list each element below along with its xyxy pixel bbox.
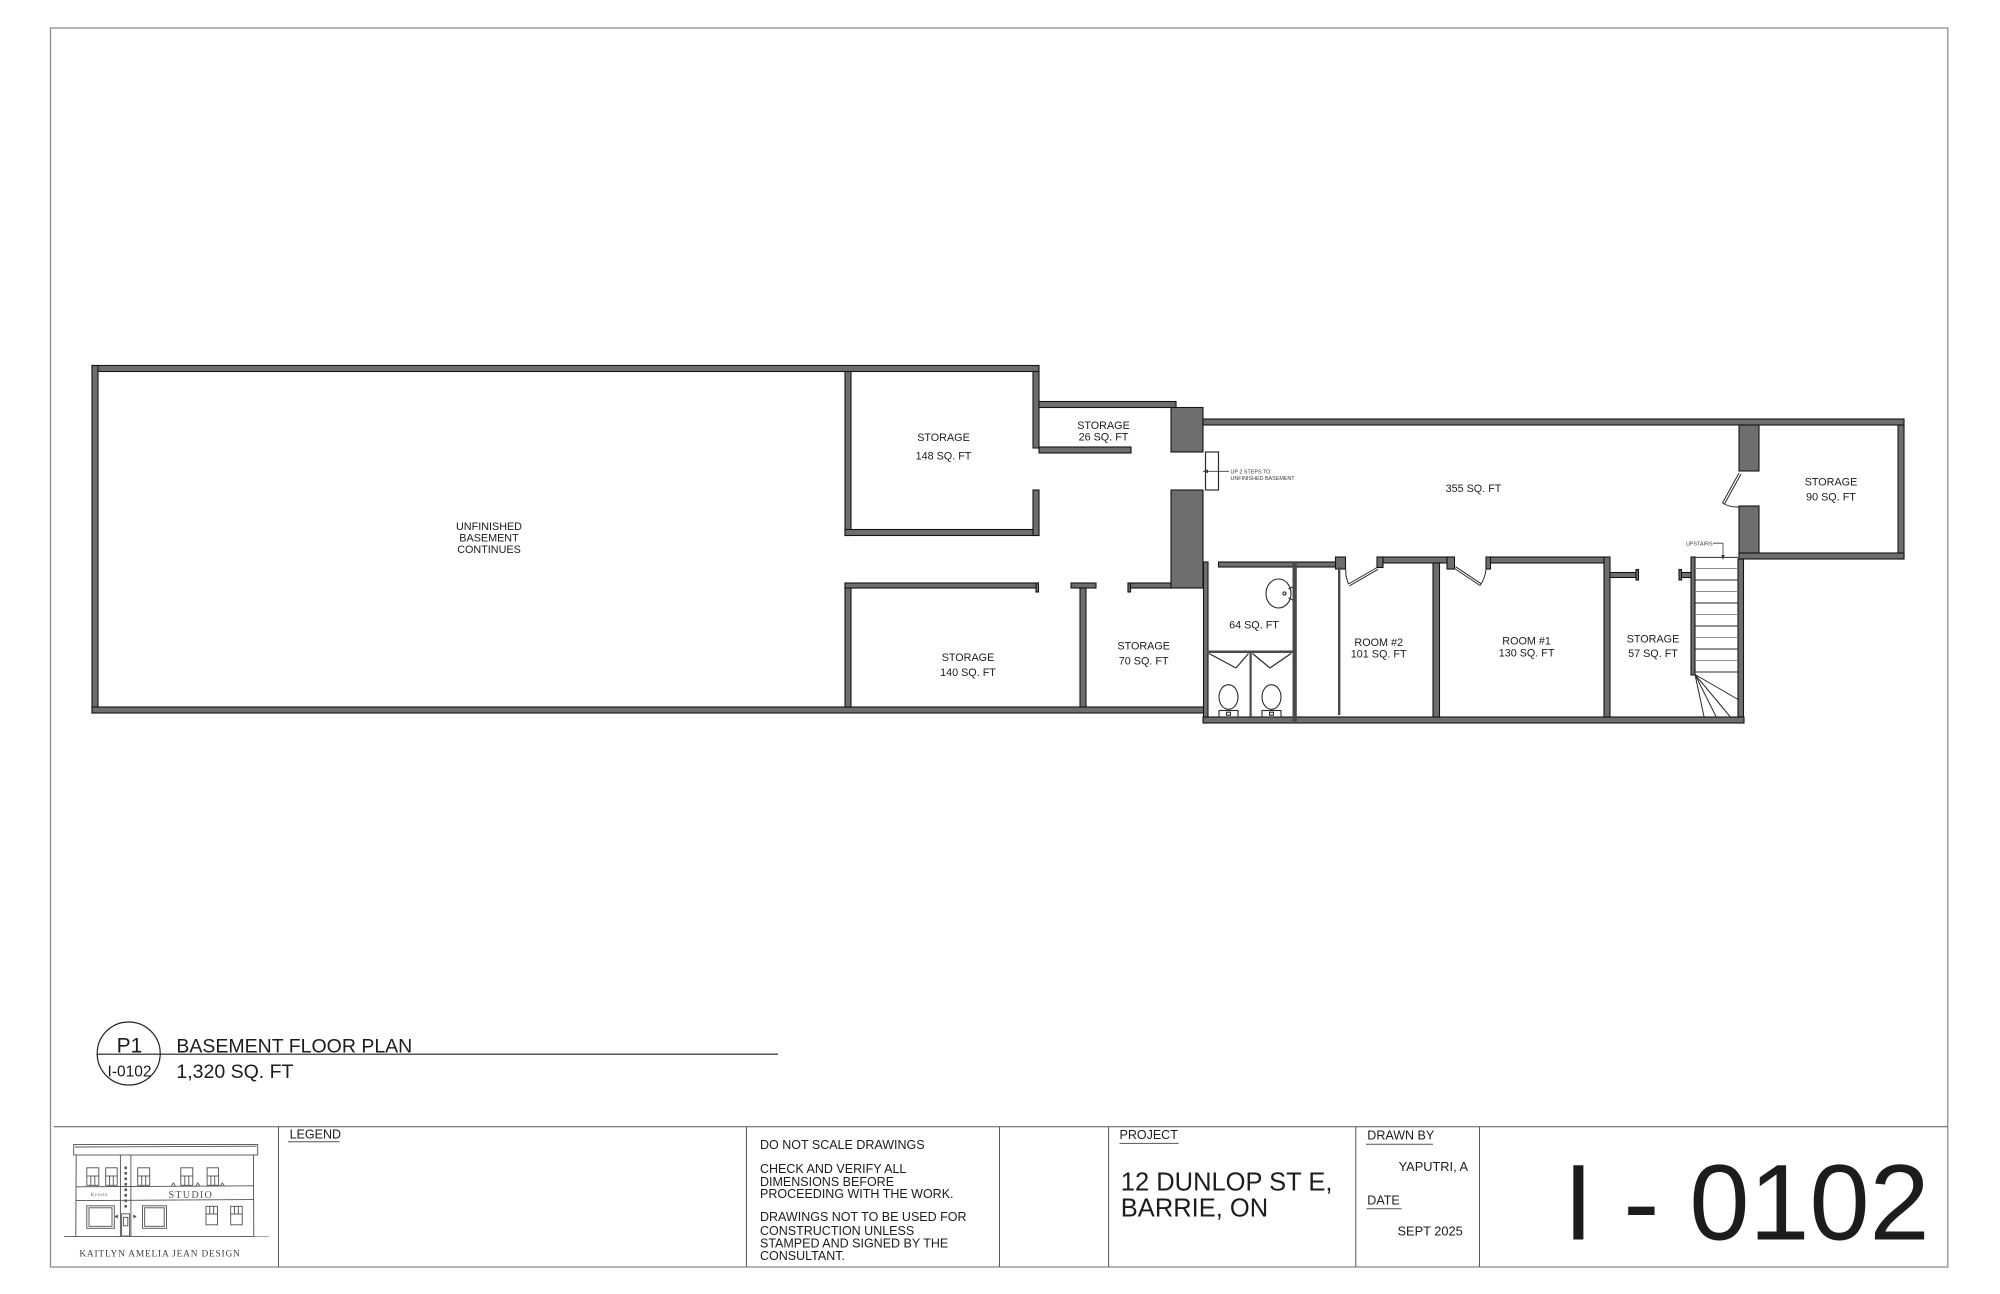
svg-text:LEGEND: LEGEND (290, 1128, 341, 1142)
svg-text:CONTINUES: CONTINUES (457, 544, 521, 556)
svg-text:140 SQ. FT: 140 SQ. FT (940, 667, 996, 679)
svg-text:DRAWN BY: DRAWN BY (1367, 1129, 1435, 1143)
svg-text:101 SQ. FT: 101 SQ. FT (1351, 648, 1407, 660)
svg-text:STORAGE: STORAGE (1627, 633, 1680, 645)
svg-text:STORAGE: STORAGE (1077, 420, 1130, 432)
svg-text:CONSULTANT.: CONSULTANT. (760, 1249, 845, 1263)
svg-text:UNFINISHED BASEMENT: UNFINISHED BASEMENT (1231, 476, 1296, 482)
svg-text:Kyosin: Kyosin (91, 1193, 108, 1198)
svg-text:1,320 SQ. FT: 1,320 SQ. FT (176, 1061, 293, 1083)
svg-text:UNFINISHED: UNFINISHED (456, 521, 522, 533)
svg-text:SEPT 2025: SEPT 2025 (1398, 1223, 1463, 1238)
svg-text:STUDIO: STUDIO (169, 1190, 214, 1201)
svg-text:BASEMENT: BASEMENT (459, 533, 519, 545)
svg-text:STORAGE: STORAGE (1117, 640, 1170, 652)
svg-text:355 SQ. FT: 355 SQ. FT (1446, 483, 1502, 495)
svg-text:STORAGE: STORAGE (1805, 476, 1858, 488)
svg-text:UPSTAIRS: UPSTAIRS (1686, 542, 1713, 548)
svg-text:CHECK AND VERIFY ALL: CHECK AND VERIFY ALL (760, 1162, 906, 1176)
svg-text:DATE: DATE (1367, 1194, 1399, 1208)
svg-text:DRAWINGS NOT TO BE USED FOR: DRAWINGS NOT TO BE USED FOR (760, 1210, 967, 1224)
svg-text:57 SQ. FT: 57 SQ. FT (1628, 648, 1678, 660)
svg-text:ROOM #1: ROOM #1 (1502, 636, 1551, 648)
svg-text:I-0102: I-0102 (108, 1064, 152, 1081)
svg-text:PROCEEDING WITH THE WORK.: PROCEEDING WITH THE WORK. (760, 1187, 954, 1201)
svg-text:BARRIE, ON: BARRIE, ON (1121, 1195, 1268, 1223)
svg-text:26 SQ. FT: 26 SQ. FT (1079, 431, 1129, 443)
svg-text:130 SQ. FT: 130 SQ. FT (1499, 647, 1555, 659)
svg-text:P1: P1 (117, 1035, 143, 1058)
svg-text:UP 2 STEPS TO: UP 2 STEPS TO (1231, 469, 1271, 475)
svg-text:70 SQ. FT: 70 SQ. FT (1119, 655, 1169, 667)
svg-text:PROJECT: PROJECT (1120, 1128, 1179, 1142)
svg-text:90 SQ. FT: 90 SQ. FT (1806, 491, 1856, 503)
svg-text:YAPUTRI, A: YAPUTRI, A (1399, 1159, 1469, 1174)
svg-text:148 SQ. FT: 148 SQ. FT (916, 450, 972, 462)
svg-text:DO NOT SCALE DRAWINGS: DO NOT SCALE DRAWINGS (760, 1138, 925, 1152)
svg-text:KAITLYN AMELIA JEAN DESIGN: KAITLYN AMELIA JEAN DESIGN (79, 1249, 240, 1259)
svg-text:STORAGE: STORAGE (942, 652, 995, 664)
svg-text:I - 0102: I - 0102 (1563, 1141, 1929, 1262)
svg-text:STORAGE: STORAGE (917, 432, 970, 444)
svg-text:BASEMENT FLOOR PLAN: BASEMENT FLOOR PLAN (176, 1035, 412, 1057)
svg-text:12 DUNLOP ST E,: 12 DUNLOP ST E, (1121, 1169, 1333, 1197)
svg-text:64 SQ. FT: 64 SQ. FT (1229, 619, 1279, 631)
